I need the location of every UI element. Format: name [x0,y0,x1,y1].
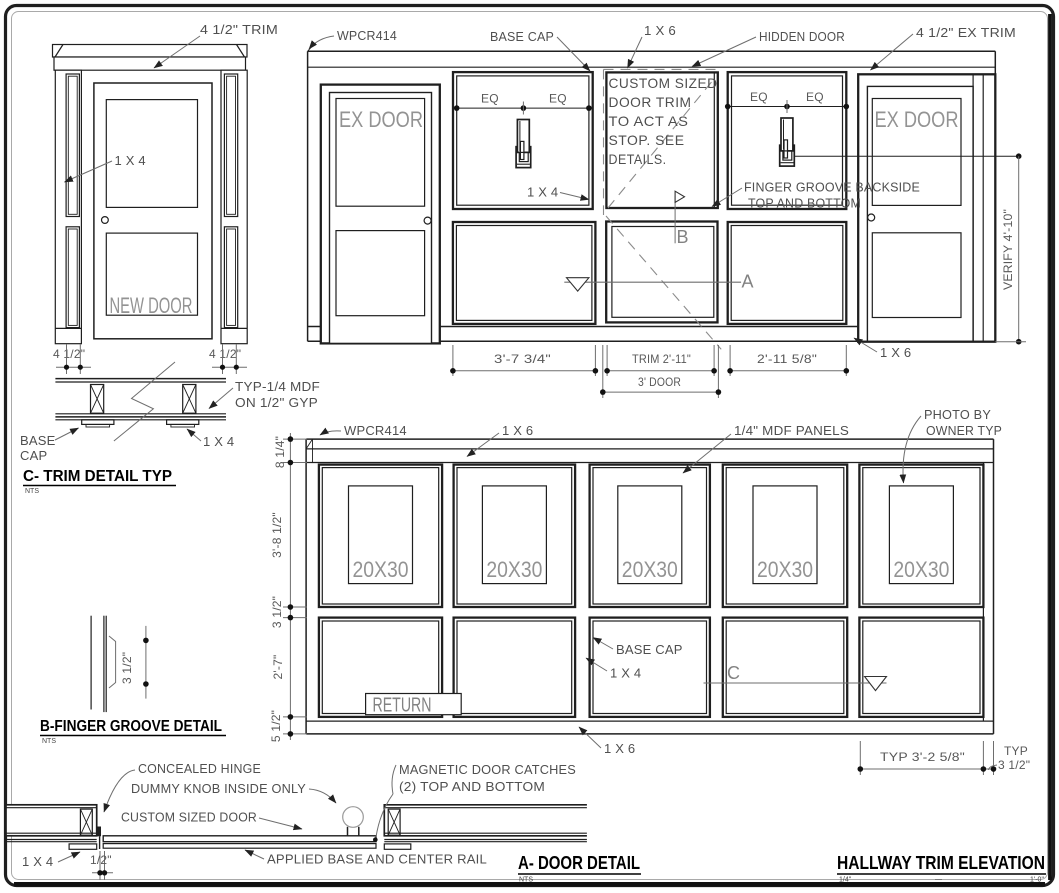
svg-text:1 X 6: 1 X 6 [502,423,533,438]
svg-text:DUMMY KNOB INSIDE ONLY: DUMMY KNOB INSIDE ONLY [131,781,306,796]
svg-text:BASE CAP: BASE CAP [616,642,683,657]
svg-text:2'-7": 2'-7" [271,655,285,680]
svg-text:TO ACT AS: TO ACT AS [609,113,689,129]
svg-text:CUSTOM SIZED: CUSTOM SIZED [609,75,718,91]
svg-text:HIDDEN DOOR: HIDDEN DOOR [759,29,845,44]
svg-text:1/2": 1/2" [90,853,112,867]
svg-text:MAGNETIC DOOR CATCHES: MAGNETIC DOOR CATCHES [399,762,576,777]
svg-text:1 X 4: 1 X 4 [203,434,234,449]
svg-text:DETAILS.: DETAILS. [609,151,667,167]
svg-text:TYP: TYP [1004,744,1028,758]
svg-text:1/4": 1/4" [839,877,852,884]
svg-text:4 1/2" TRIM: 4 1/2" TRIM [200,22,278,37]
svg-text:ON 1/2" GYP: ON 1/2" GYP [235,395,318,410]
svg-text:20X30: 20X30 [486,557,542,582]
svg-text:3 1/2": 3 1/2" [120,652,134,684]
svg-text:EQ: EQ [481,92,499,106]
svg-text:3' DOOR: 3' DOOR [638,375,681,389]
svg-text:WPCR414: WPCR414 [337,28,397,43]
svg-text:EX DOOR: EX DOOR [875,107,959,132]
svg-text:TRIM 2'-11": TRIM 2'-11" [632,352,691,366]
svg-text:CAP: CAP [20,448,47,463]
svg-text:20X30: 20X30 [757,557,813,582]
svg-text:1 X 4: 1 X 4 [527,185,558,200]
svg-text:EQ: EQ [806,90,824,104]
svg-text:4 1/2" EX TRIM: 4 1/2" EX TRIM [916,25,1016,40]
svg-text:2'-11 5/8": 2'-11 5/8" [757,352,817,366]
svg-text:CUSTOM SIZED DOOR: CUSTOM SIZED DOOR [121,810,257,825]
svg-text:1 X 6: 1 X 6 [604,741,635,756]
svg-text:1 X 6: 1 X 6 [880,345,911,360]
svg-text:FINGER GROOVE BACKSIDE: FINGER GROOVE BACKSIDE [744,180,920,195]
svg-text:NTS: NTS [42,738,56,745]
svg-text:20X30: 20X30 [893,557,949,582]
svg-text:20X30: 20X30 [622,557,678,582]
svg-text:BASE: BASE [20,433,56,448]
svg-text:NTS: NTS [25,488,39,495]
svg-text:8 1/4": 8 1/4" [273,436,287,468]
svg-text:1 X 4: 1 X 4 [22,854,53,869]
svg-text:PHOTO BY: PHOTO BY [924,407,991,422]
svg-text:EX DOOR: EX DOOR [339,107,423,132]
svg-text:3 1/2": 3 1/2" [270,596,284,628]
svg-text:3'-7 3/4": 3'-7 3/4" [494,352,551,366]
svg-text:(2) TOP AND BOTTOM: (2) TOP AND BOTTOM [399,779,545,794]
svg-text:1'-0": 1'-0" [1030,877,1044,884]
svg-text:RETURN: RETURN [373,695,432,717]
svg-text:APPLIED BASE AND CENTER RAIL: APPLIED BASE AND CENTER RAIL [267,852,487,867]
svg-text:EQ: EQ [549,92,567,106]
svg-text:5 1/2": 5 1/2" [269,710,283,742]
svg-text:DOOR TRIM: DOOR TRIM [609,94,692,110]
svg-text:NEW DOOR: NEW DOOR [110,293,193,318]
svg-text:C- TRIM DETAIL TYP: C- TRIM DETAIL TYP [23,468,172,485]
svg-text:TYP-1/4 MDF: TYP-1/4 MDF [235,379,320,394]
svg-text:TYP 3'-2 5/8": TYP 3'-2 5/8" [880,750,965,764]
svg-text:A- DOOR DETAIL: A- DOOR DETAIL [518,853,640,873]
svg-text:STOP. SEE: STOP. SEE [609,132,685,148]
svg-text:3 1/2": 3 1/2" [998,758,1030,772]
svg-text:B-FINGER GROOVE DETAIL: B-FINGER GROOVE DETAIL [40,718,222,735]
svg-text:1 X 4: 1 X 4 [610,666,641,681]
svg-text:1 X 4: 1 X 4 [115,153,146,168]
svg-text:CONCEALED HINGE: CONCEALED HINGE [138,761,261,776]
svg-text:NTS: NTS [519,877,533,884]
svg-text:B: B [677,227,689,247]
svg-text:A: A [742,272,754,292]
svg-text:OWNER TYP: OWNER TYP [926,423,1002,438]
svg-text:1 X 6: 1 X 6 [644,23,676,38]
svg-text:EQ: EQ [750,90,768,104]
svg-text:VERIFY 4'-10": VERIFY 4'-10" [1001,209,1015,290]
svg-text:TOP AND BOTTOM: TOP AND BOTTOM [748,196,861,211]
svg-text:BASE CAP: BASE CAP [490,29,554,44]
svg-text:20X30: 20X30 [353,557,409,582]
svg-text:C: C [727,663,740,683]
svg-text:WPCR414: WPCR414 [344,423,407,438]
svg-text:HALLWAY TRIM ELEVATION: HALLWAY TRIM ELEVATION [837,853,1045,873]
svg-text:—: — [935,877,942,884]
svg-text:3'-8 1/2": 3'-8 1/2" [270,512,284,558]
svg-text:1/4" MDF PANELS: 1/4" MDF PANELS [734,423,849,438]
